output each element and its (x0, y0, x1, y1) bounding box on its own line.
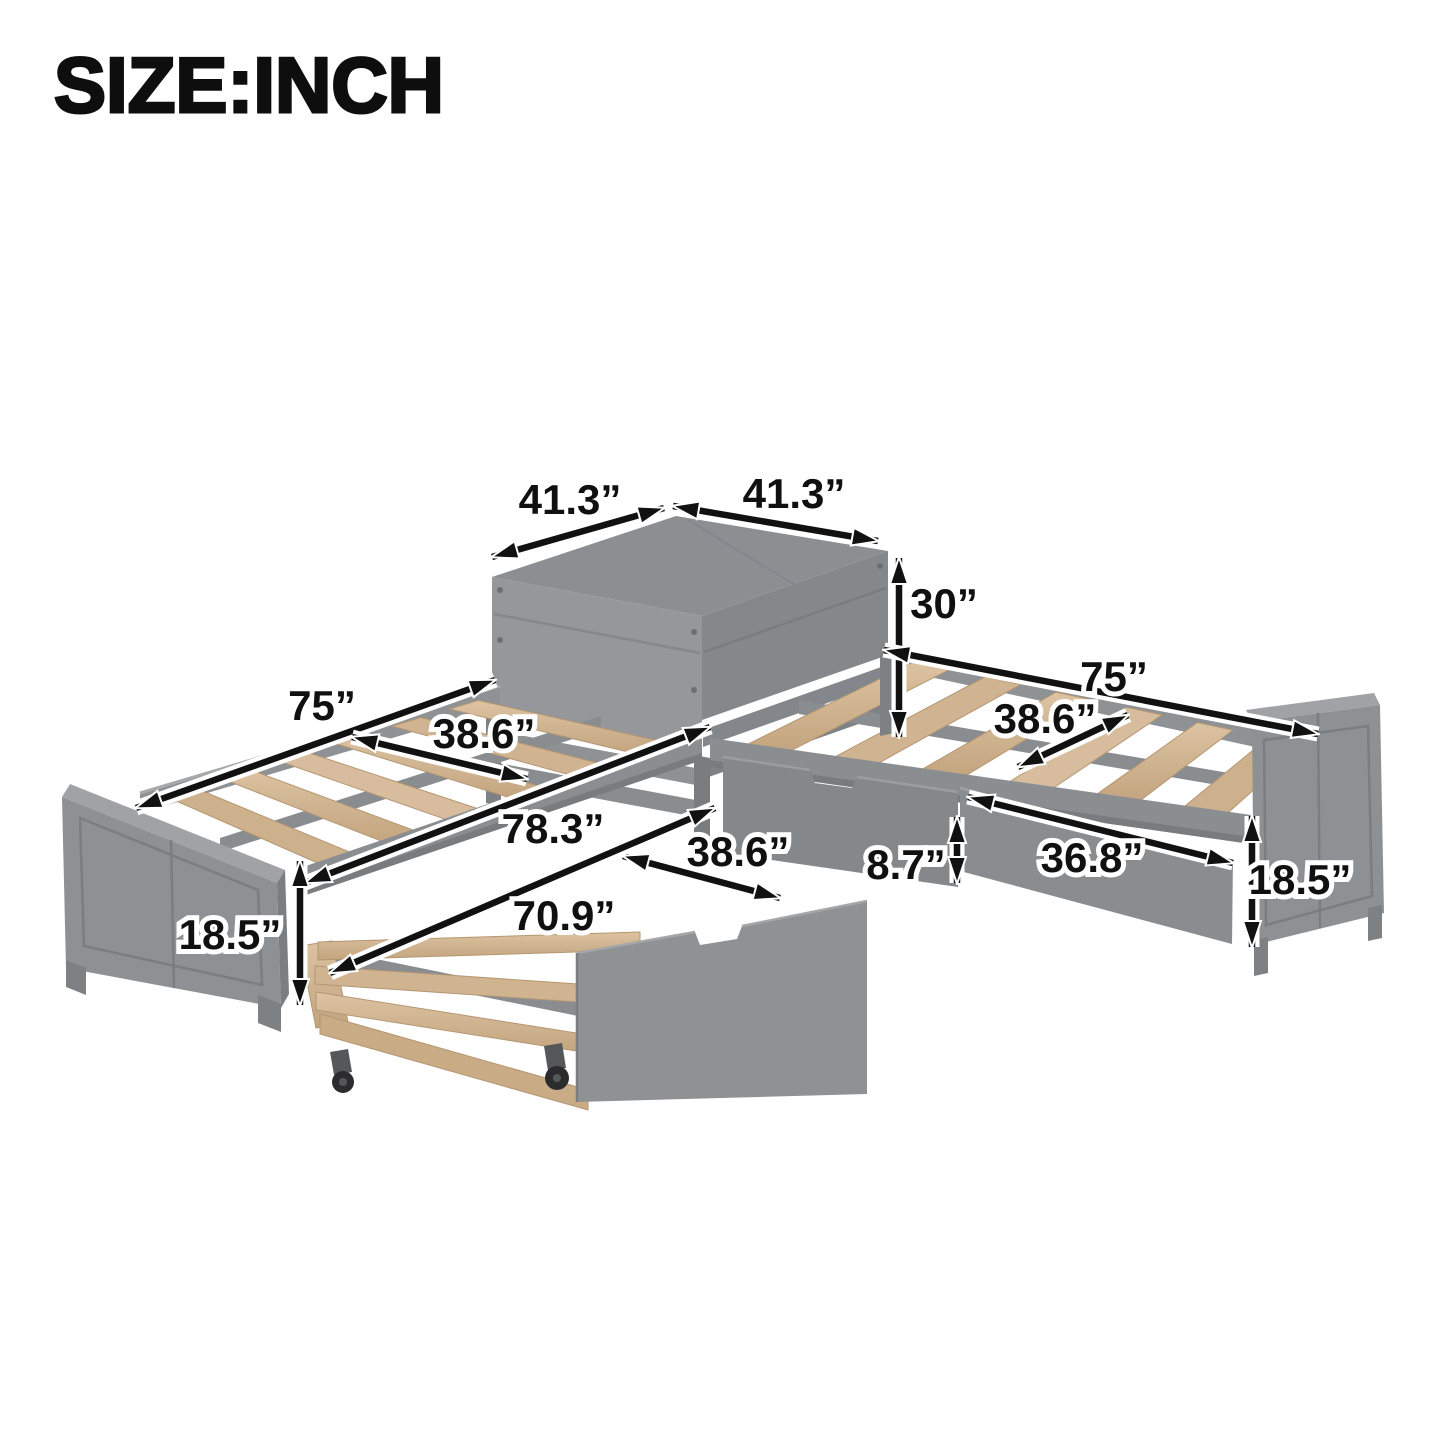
product-dimension-diagram: SIZE:INCH (0, 0, 1445, 1445)
dimension-label-trundle-length: 70.9” (513, 892, 616, 939)
dimension-label-table-right: 41.3” (743, 470, 846, 517)
dimension-label-left-bed-width: 38.6” (433, 710, 536, 757)
dimension-label-left-bed-length: 75” (288, 682, 356, 729)
caster-wheel (330, 1049, 354, 1093)
dimension-label-trundle-height: 8.7” (866, 841, 945, 888)
trundle-end-panel (577, 901, 867, 1102)
dimension-label-total-length: 78.3” (502, 805, 605, 852)
dimension-label-left-bed-height: 18.5” (179, 911, 282, 958)
dimension-label-right-bed-length: 75” (1080, 653, 1148, 700)
dimension-label-right-bed-height: 18.5” (1249, 856, 1352, 903)
right-footboard-leg (1368, 905, 1382, 941)
page-title: SIZE:INCH (54, 41, 444, 129)
caster-wheel (544, 1043, 569, 1090)
dimension-label-drawer-width: 36.8” (1041, 834, 1144, 881)
bed-diagram-svg: SIZE:INCH (0, 0, 1445, 1445)
dimension-label-trundle-width: 38.6” (687, 828, 790, 875)
dimension-label-table-height: 30” (910, 580, 978, 627)
dimension-label-table-left: 41.3” (519, 476, 622, 523)
dimension-label-right-bed-width: 38.6” (994, 695, 1097, 742)
